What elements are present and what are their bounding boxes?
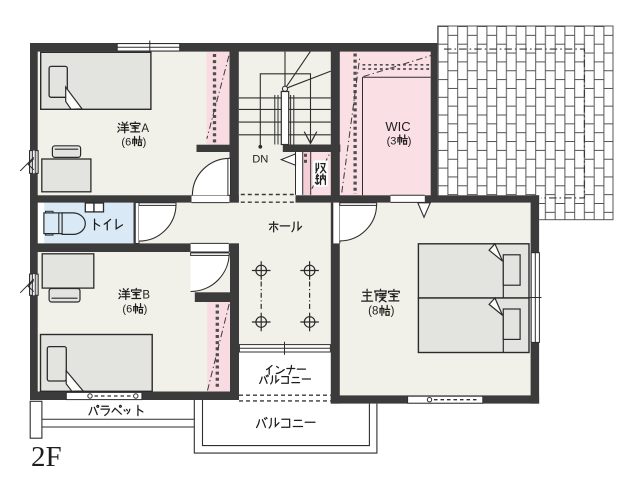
svg-text:A: A	[141, 123, 149, 135]
svg-text:(3: (3	[387, 135, 397, 147]
svg-text:): )	[391, 306, 395, 318]
svg-text:DN: DN	[252, 153, 268, 165]
svg-text:2F: 2F	[31, 441, 62, 473]
svg-text:WIC: WIC	[385, 119, 410, 134]
svg-text:(8: (8	[368, 306, 378, 318]
svg-text:B: B	[142, 290, 150, 302]
svg-text:): )	[408, 135, 412, 147]
svg-text:(6: (6	[121, 136, 131, 148]
svg-text:(6: (6	[122, 304, 132, 316]
svg-text:): )	[144, 304, 148, 316]
svg-text:): )	[143, 136, 147, 148]
